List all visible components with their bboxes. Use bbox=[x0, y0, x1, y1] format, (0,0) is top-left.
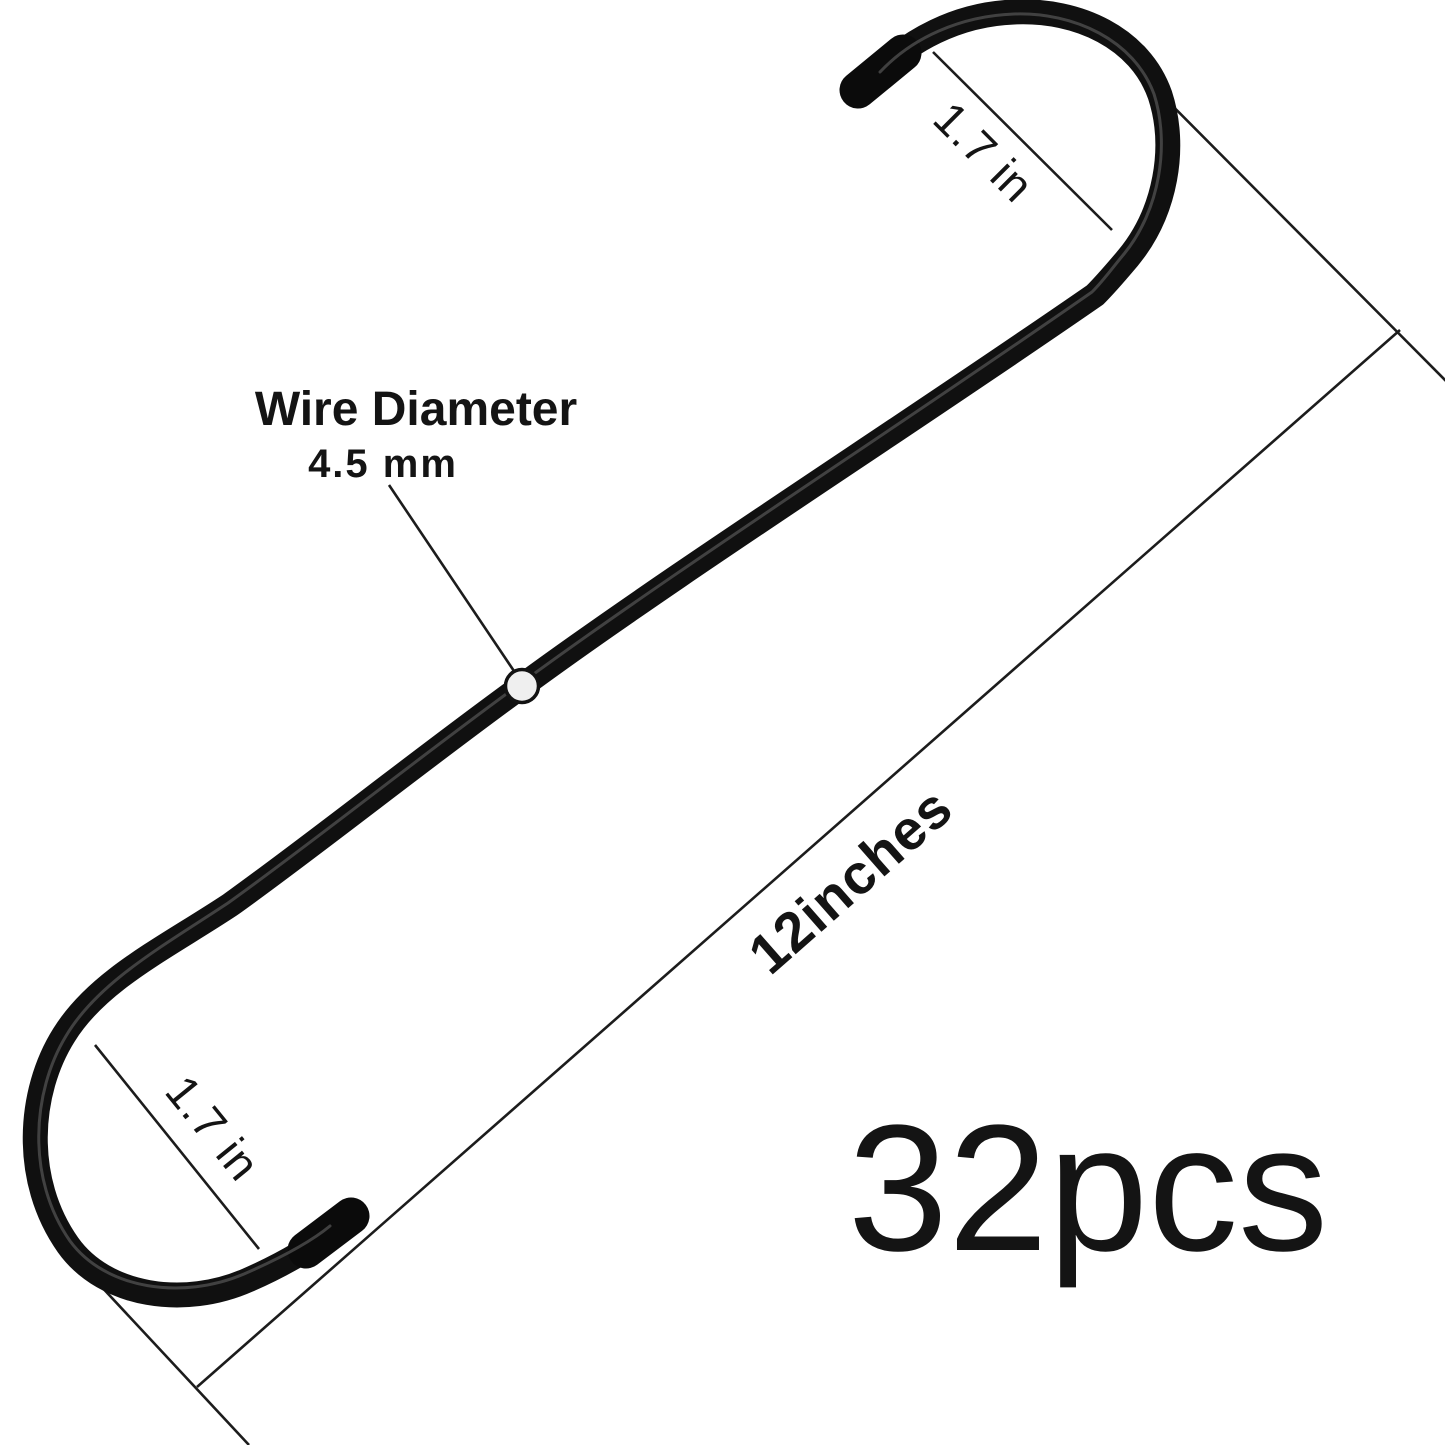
overall-length-label: 12inches bbox=[736, 775, 964, 986]
wire-diameter-leader-line bbox=[389, 485, 520, 680]
quantity-label: 32pcs bbox=[848, 1088, 1328, 1289]
product-diagram-canvas: Wire Diameter 4.5 mm 1.7 in 1.7 in 12inc… bbox=[0, 0, 1445, 1445]
labels: Wire Diameter 4.5 mm 1.7 in 1.7 in 12inc… bbox=[155, 92, 1328, 1289]
top-hook-width-label: 1.7 in bbox=[924, 92, 1045, 213]
wire-diameter-marker-dot bbox=[506, 670, 539, 703]
wire-diameter-title: Wire Diameter bbox=[255, 383, 577, 436]
bottom-hook-tip-cap bbox=[306, 1216, 351, 1250]
bottom-hook-width-label: 1.7 in bbox=[155, 1066, 270, 1191]
wire-diameter-value: 4.5 mm bbox=[308, 442, 458, 486]
s-hook-dimension-drawing: Wire Diameter 4.5 mm 1.7 in 1.7 in 12inc… bbox=[0, 0, 1445, 1445]
